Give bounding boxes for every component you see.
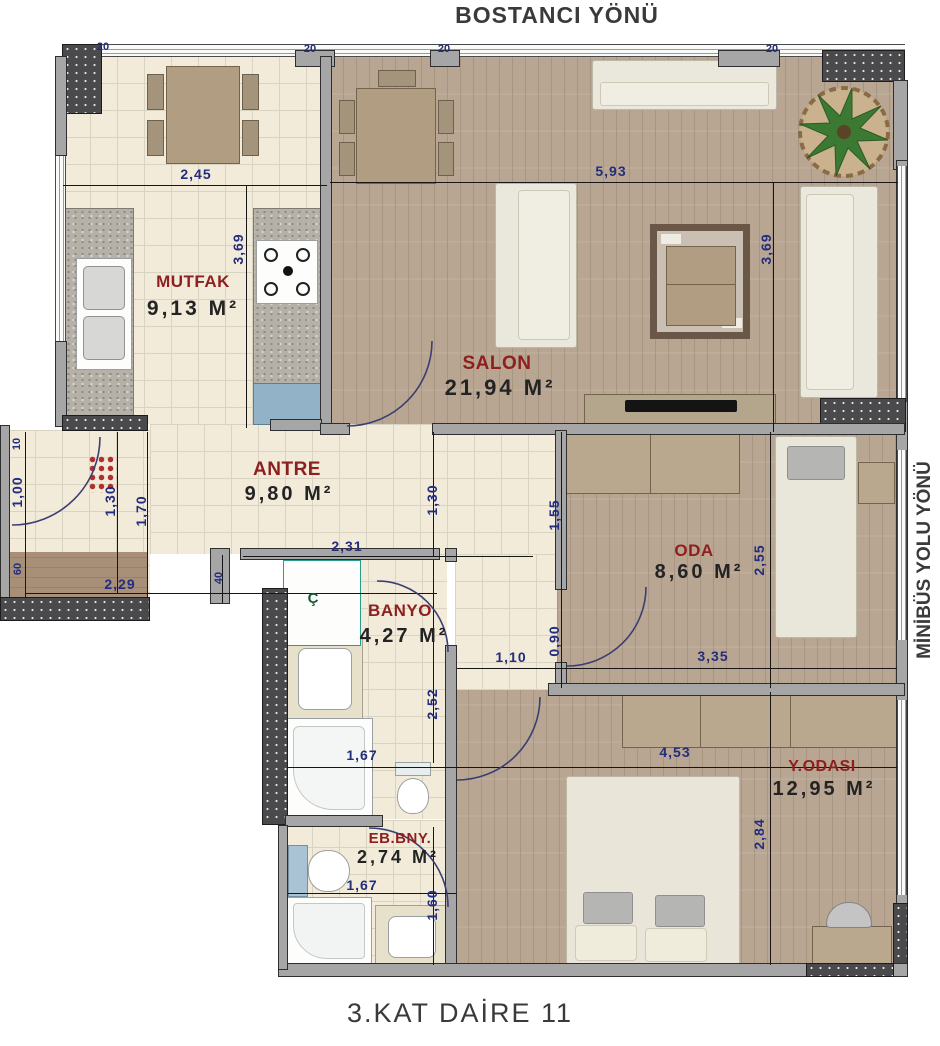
- dimension-line: [25, 593, 437, 594]
- sink-basin: [83, 316, 125, 360]
- page-title-right: MİNİBÜS YOLU YÖNÜ: [913, 410, 937, 710]
- burner-center: [283, 266, 293, 276]
- dimension-line: [433, 560, 434, 763]
- wall: [432, 423, 905, 435]
- rug-accent: [661, 234, 681, 244]
- concrete-column: [893, 903, 908, 967]
- dimension-line: [330, 182, 898, 183]
- page-title-top: BOSTANCI YÖNÜ: [387, 2, 727, 29]
- room-area-antre: 9,80 M²: [209, 483, 369, 506]
- wall: [445, 548, 457, 562]
- dim-label: 2,31: [312, 538, 382, 554]
- dim-label: 1,55: [546, 487, 562, 543]
- burner: [264, 248, 278, 262]
- room-name-antre: ANTRE: [217, 459, 357, 481]
- dim-label: 5,93: [576, 163, 646, 179]
- toilet-tank: [395, 762, 431, 776]
- yodasi-wardrobe: [622, 690, 897, 748]
- room-name-yodasi: Y.ODASI: [752, 758, 892, 776]
- wall: [548, 683, 905, 696]
- dim-label: 2,84: [751, 806, 767, 862]
- toilet-tank: [288, 845, 308, 897]
- concrete-column: [62, 415, 148, 431]
- room-name-banyo: BANYO: [330, 601, 470, 621]
- dim-label: 3,69: [230, 221, 246, 277]
- yodasi-wardrobe-divider: [790, 690, 791, 748]
- chair: [339, 142, 355, 176]
- room-name-salon: SALON: [427, 353, 567, 375]
- room-area-oda: 8,60 M²: [619, 561, 779, 584]
- dim-label: 1,60: [424, 877, 440, 933]
- chair: [147, 120, 164, 156]
- pillow: [655, 895, 705, 927]
- chair: [242, 74, 259, 110]
- dim-label: 60: [10, 549, 26, 589]
- burner: [296, 282, 310, 296]
- dim-label: 1,67: [327, 747, 397, 763]
- pillow: [645, 928, 707, 962]
- burner: [296, 248, 310, 262]
- dim-label: 1,00: [9, 464, 25, 520]
- room-area-banyo: 4,27 M²: [324, 625, 484, 648]
- window: [897, 166, 907, 402]
- chair: [147, 74, 164, 110]
- room-name-ebbny: EB.BNY.: [330, 830, 470, 847]
- room-area-ebbny: 2,74 M²: [318, 847, 478, 868]
- dim-label: 20: [424, 41, 464, 57]
- banyo-washbasin: [298, 648, 352, 710]
- wall: [320, 56, 332, 424]
- chair: [378, 70, 416, 87]
- dimension-line: [773, 182, 774, 432]
- laundry-closet-label: Ç: [303, 590, 323, 607]
- window: [55, 156, 66, 341]
- oda-side-table: [858, 462, 895, 504]
- dim-label: 20: [752, 41, 792, 57]
- dimension-line: [63, 185, 327, 186]
- window: [897, 450, 907, 640]
- concrete-column: [0, 597, 150, 621]
- dim-label: 40: [211, 558, 227, 598]
- dimension-line: [770, 692, 771, 965]
- room-name-oda: ODA: [624, 541, 764, 561]
- dim-label: 2,52: [424, 676, 440, 732]
- wall: [55, 56, 67, 156]
- dresser: [812, 926, 892, 965]
- coffee-table-divider: [666, 284, 736, 285]
- dim-label: 2,29: [85, 576, 155, 592]
- corridor-floor: [455, 554, 557, 690]
- dim-label: 2,45: [161, 166, 231, 182]
- oda-wardrobe-divider: [650, 432, 651, 494]
- sofa-right-seat: [806, 194, 854, 390]
- dim-label: 3,35: [678, 648, 748, 664]
- chair: [438, 142, 454, 176]
- dim-label: 1,10: [476, 649, 546, 665]
- room-name-mutfak: MUTFAK: [123, 272, 263, 292]
- chair: [438, 100, 454, 134]
- dim-label: 1,30: [102, 473, 118, 529]
- room-area-yodasi: 12,95 M²: [744, 778, 904, 801]
- dim-label: 20: [83, 39, 123, 55]
- coffee-table: [666, 246, 736, 326]
- sofa-top-seat: [600, 82, 769, 106]
- dim-label: 0,90: [546, 613, 562, 669]
- wall: [893, 80, 908, 170]
- dim-label: 1,67: [327, 877, 397, 893]
- wall: [445, 645, 457, 965]
- dim-label: 1,30: [424, 472, 440, 528]
- page-title-bottom: 3.KAT DAİRE 11: [310, 998, 610, 1029]
- bathtub-inner: [293, 726, 365, 810]
- dim-label: 3,69: [758, 221, 774, 277]
- wall: [285, 815, 383, 827]
- sofa-left-seat: [518, 190, 570, 340]
- dim-label: 10: [9, 424, 25, 464]
- burner: [264, 282, 278, 296]
- dim-label: 1,70: [133, 483, 149, 539]
- wall: [270, 419, 322, 431]
- chair: [339, 100, 355, 134]
- pillow: [787, 446, 845, 480]
- pillow: [575, 925, 637, 961]
- toilet-bowl: [397, 778, 429, 814]
- dimension-line: [243, 556, 533, 557]
- dimension-line: [457, 668, 897, 669]
- wall: [320, 423, 350, 435]
- dimension-line: [770, 432, 771, 688]
- concrete-column: [806, 963, 894, 977]
- dim-label: 20: [290, 41, 330, 57]
- pillow: [583, 892, 633, 924]
- chair: [242, 120, 259, 156]
- concrete-column: [822, 50, 905, 82]
- wall: [278, 825, 288, 970]
- room-area-salon: 21,94 M²: [410, 375, 590, 401]
- concrete-column: [262, 588, 288, 825]
- tv: [625, 400, 737, 412]
- kitchen-table: [166, 66, 240, 164]
- room-area-mutfak: 9,13 M²: [113, 297, 273, 321]
- salon-dining-table: [356, 88, 436, 184]
- floor-plan: 20 20 20 20 2,45 5,93 3,69 3,69 10 1,00 …: [0, 0, 940, 1046]
- yodasi-wardrobe-divider: [700, 690, 701, 748]
- dim-label: 4,53: [640, 744, 710, 760]
- shower-inner: [293, 903, 365, 959]
